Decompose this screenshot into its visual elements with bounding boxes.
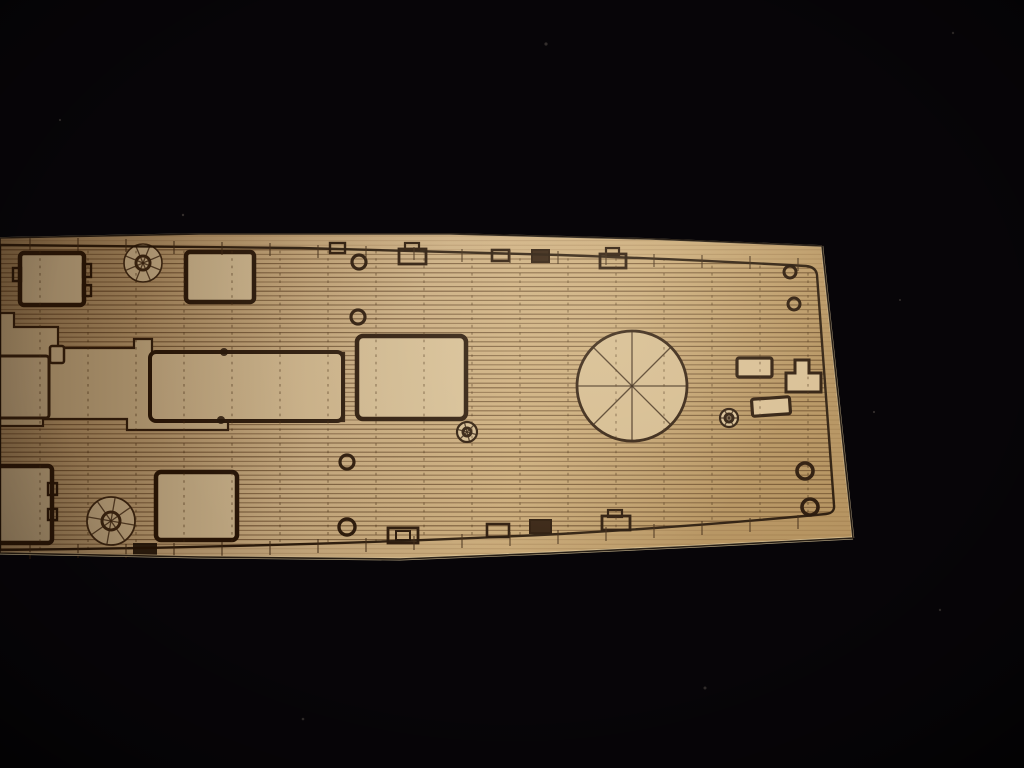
deck-photo-canvas: [0, 0, 1024, 768]
photo-frame: [0, 0, 1024, 768]
vignette: [0, 0, 1024, 768]
